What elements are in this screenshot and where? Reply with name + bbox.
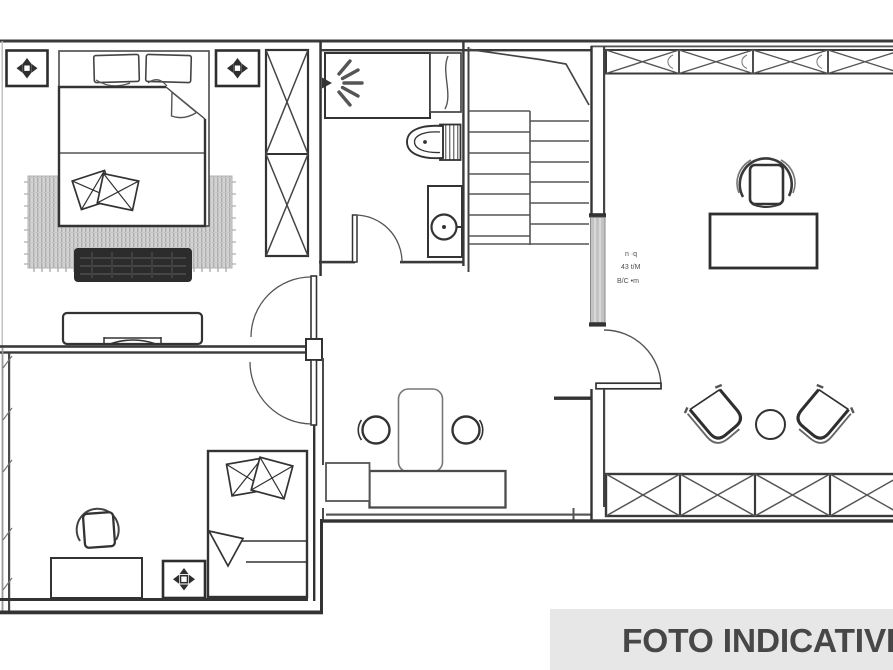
svg-text:B/C •m: B/C •m (617, 278, 639, 285)
svg-text:n ·q: n ·q (625, 251, 637, 258)
svg-text:FOTO INDICATIVE: FOTO INDICATIVE (622, 623, 893, 660)
svg-text:43 t/M: 43 t/M (621, 264, 641, 271)
